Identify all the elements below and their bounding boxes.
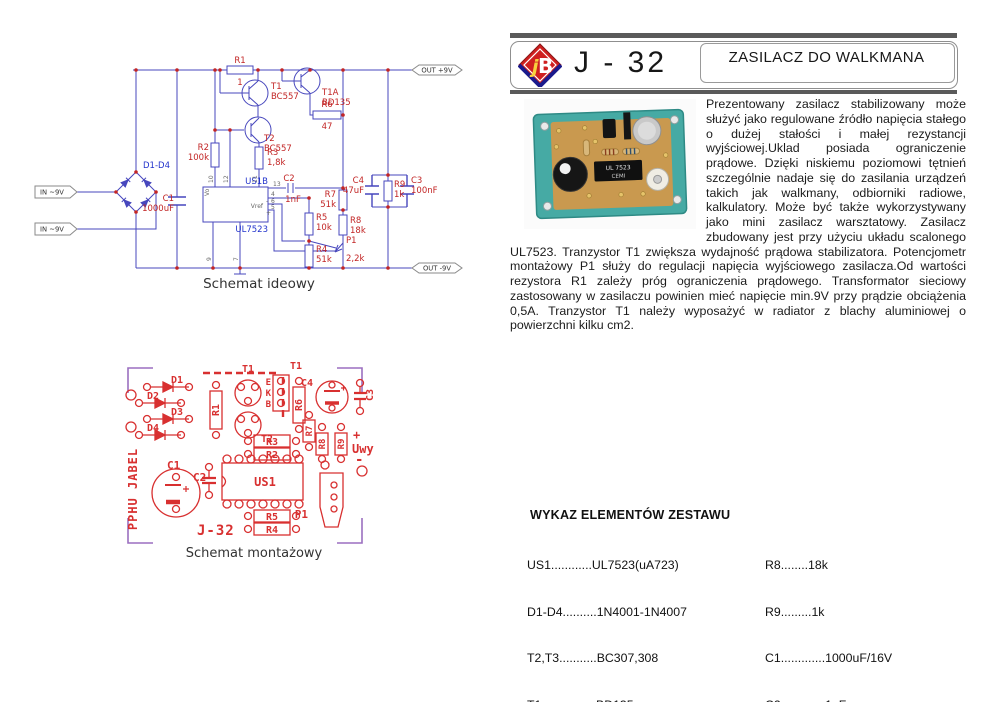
label-r4-value: 51k <box>316 255 332 265</box>
pcb-label-d4: D4 <box>147 423 159 434</box>
pcb-label-k: K <box>266 389 272 399</box>
pcb-model-label: J-32 <box>197 523 235 539</box>
header-bottom-rule <box>510 90 957 94</box>
parts-item: R9.........1k <box>765 605 934 621</box>
label-c3-value: 100nF <box>411 186 438 196</box>
pin-4: 4 <box>271 191 275 198</box>
parts-list-heading: WYKAZ ELEMENTÓW ZESTAWU <box>530 508 730 522</box>
pcb-label-r2: R2 <box>266 450 278 461</box>
label-c4: C4 <box>353 176 364 186</box>
pcb-label-e: E <box>266 378 271 388</box>
parts-list-left-column: US1............UL7523(uA723) D1-D4......… <box>527 527 687 702</box>
pin-7: 7 <box>233 257 240 261</box>
pcb-label-b: B <box>266 400 272 410</box>
pin-5: 5 <box>271 204 275 211</box>
out-pos-tag-label: OUT +9V <box>421 67 453 75</box>
label-c1: C1 <box>163 194 174 204</box>
pin-12: 12 <box>223 175 230 183</box>
label-t1-value: BC557 <box>271 92 299 102</box>
pcb-label-plus: + <box>353 428 360 442</box>
label-c3: C3 <box>411 176 422 186</box>
parts-item: T1................BD135 <box>527 698 687 702</box>
pin-13: 13 <box>273 181 281 188</box>
intro-section: UL 7523 CEMI Prezentowany zasilacz stabi… <box>510 97 966 333</box>
pcb-label-r7: R7 <box>305 426 315 437</box>
label-vo: Vo <box>204 188 211 196</box>
document-page: IN ~9V IN ~9V OUT +9V OUT -9V R1 1 T1 BC… <box>0 0 992 702</box>
pcb-label-t1: T1 <box>242 364 254 375</box>
pcb-label-us1: US1 <box>254 475 276 489</box>
parts-item: R8........18k <box>765 558 934 574</box>
pcb-label-r4: R4 <box>266 525 278 536</box>
kit-model-code: J - 32 <box>574 46 667 80</box>
logo-letter-b: B <box>538 54 553 78</box>
bridge-diodes <box>121 178 151 207</box>
pcb-traces <box>126 373 367 535</box>
parts-item: T2,T3...........BC307,308 <box>527 651 687 667</box>
label-vref: Vref <box>251 203 264 210</box>
label-r2-value: 100k <box>188 153 209 163</box>
pin-11: 11 <box>252 175 259 183</box>
label-c4-value: 47uF <box>343 186 364 196</box>
schematic-resistors <box>211 66 392 267</box>
label-minus: - <box>266 198 268 205</box>
label-c2: C2 <box>283 174 294 184</box>
pcb-label-r1: R1 <box>211 404 222 416</box>
label-t1a: T1A <box>321 88 339 98</box>
label-r6-value: 47 <box>322 122 333 132</box>
pcb-label-r9: R9 <box>337 439 347 450</box>
pcb-label-c1: C1 <box>167 459 181 472</box>
pcb-label-p1: P1 <box>295 508 309 521</box>
photo-ic-line1: UL 7523 <box>606 164 631 172</box>
pcb-layout: PPHU JABEL D1 D2 D3 D4 R1 T1 T1 T2 E K B… <box>115 355 375 570</box>
schematic-caption: Schemat ideowy <box>203 276 315 292</box>
pcb-brand: PPHU JABEL <box>126 448 140 530</box>
pcb-caption: Schemat montażowy <box>186 546 323 561</box>
pcb-label-t1b: T1 <box>290 361 302 372</box>
pcb-photo-image: UL 7523 CEMI <box>524 99 696 229</box>
page-title: ZASILACZ DO WALKMANA <box>710 49 943 66</box>
label-c2-value: 1nF <box>285 195 301 205</box>
label-r8-value: 18k <box>350 226 366 236</box>
label-plus: + <box>266 210 271 217</box>
label-r3-value: 1,8k <box>267 158 286 168</box>
label-t2: T2 <box>263 134 275 144</box>
pin-10: 10 <box>208 175 215 183</box>
photo-ic-line2: CEMI <box>612 173 626 179</box>
pin-9: 9 <box>206 257 213 261</box>
label-r2: R2 <box>198 143 209 153</box>
pcb-label-c3: C3 <box>365 389 375 401</box>
label-r8: R8 <box>350 216 361 226</box>
header-top-rule <box>510 33 957 38</box>
label-r1: R1 <box>234 56 245 66</box>
pcb-label-minus: - <box>355 452 363 468</box>
pcb-label-c2: C2 <box>193 471 206 484</box>
parts-item: C1.............1000uF/16V <box>765 651 934 667</box>
label-r5: R5 <box>316 213 327 223</box>
jabel-logo-icon: j B <box>518 43 562 87</box>
label-r7-value: 51k <box>320 200 336 210</box>
in1-tag-label: IN ~9V <box>40 189 64 197</box>
pcb-photo: UL 7523 CEMI <box>524 99 696 229</box>
label-r9: R9 <box>394 180 405 190</box>
label-ul7523: UL7523 <box>235 225 268 235</box>
schematic-wires <box>77 68 415 274</box>
label-r4: R4 <box>316 245 327 255</box>
pcb-label-d1: D1 <box>171 375 183 386</box>
label-r7: R7 <box>325 190 336 200</box>
label-r3: R3 <box>267 148 278 158</box>
parts-item: C2.............1nF <box>765 698 934 702</box>
pcb-label-d3: D3 <box>171 407 183 418</box>
pcb-label-c4: C4 <box>301 378 313 389</box>
pcb-label-d2: D2 <box>147 391 159 402</box>
pcb-label-r3: R3 <box>266 437 278 448</box>
label-c1-value: 1000uF <box>142 204 174 214</box>
out-neg-tag-label: OUT -9V <box>423 265 451 273</box>
label-r5-value: 10k <box>316 223 332 233</box>
in2-tag-label: IN ~9V <box>40 226 64 234</box>
pcb-label-r5: R5 <box>266 512 278 523</box>
label-p1-value: 2,2k <box>346 254 365 264</box>
parts-item: US1............UL7523(uA723) <box>527 558 687 574</box>
label-bridge: D1-D4 <box>143 161 170 171</box>
label-r1-value: 1 <box>237 78 242 88</box>
label-p1: P1 <box>346 236 357 246</box>
label-t1: T1 <box>270 82 282 92</box>
pcb-label-r8: R8 <box>318 439 328 450</box>
circuit-schematic: IN ~9V IN ~9V OUT +9V OUT -9V R1 1 T1 BC… <box>30 55 480 315</box>
pcb-label-r6: R6 <box>294 399 305 411</box>
parts-item: D1-D4..........1N4001-1N4007 <box>527 605 687 621</box>
parts-list-right-column: R8........18k R9.........1k C1..........… <box>765 527 934 702</box>
label-r9-value: 1k <box>394 190 404 200</box>
label-r6: R6 <box>321 100 332 110</box>
